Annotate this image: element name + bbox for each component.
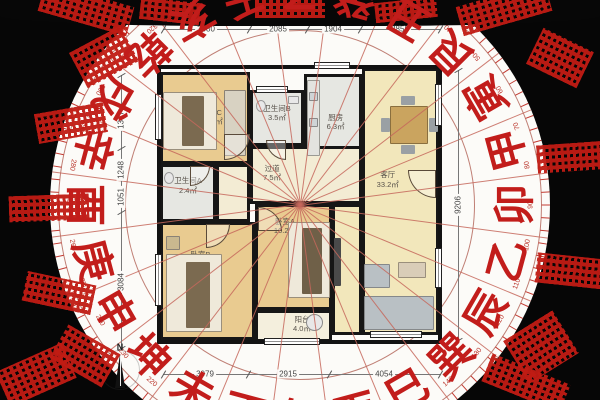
furniture-sink	[309, 92, 318, 101]
room-name: 过道	[263, 164, 281, 173]
degree-tick	[495, 57, 503, 63]
dimension-label: 9206	[454, 194, 463, 216]
furniture-stove	[309, 118, 318, 127]
window	[435, 84, 442, 126]
window	[264, 338, 320, 345]
degree-tick	[53, 242, 62, 244]
degree-tick	[142, 392, 148, 400]
degree-tick	[541, 191, 550, 192]
furniture-bed-blanket	[182, 96, 204, 146]
furniture-washer	[306, 314, 323, 331]
outer-ring-glyph	[535, 252, 600, 289]
degree-tick	[487, 47, 495, 53]
north-label: N	[117, 342, 124, 352]
degree-tick	[53, 165, 62, 167]
room-area: 3.5㎡	[263, 113, 291, 122]
degree-tick	[540, 230, 549, 232]
room-label: 卫生间B3.5㎡	[263, 104, 291, 123]
dimension-label: 1248	[117, 159, 126, 181]
room-name: 卫生间B	[263, 104, 291, 113]
degree-tick	[525, 291, 534, 295]
furniture-dining-table	[390, 106, 428, 144]
mountain-character: 子	[279, 0, 321, 11]
window	[155, 254, 162, 306]
room-label: 客厅33.2㎡	[377, 170, 399, 189]
mountain-character: 卯	[494, 184, 536, 226]
degree-tick	[479, 37, 486, 44]
degree-tick	[77, 314, 85, 319]
room-area: 2.4㎡	[174, 186, 202, 195]
outer-ring-glyph	[536, 140, 600, 173]
window	[256, 86, 288, 93]
window	[370, 331, 422, 338]
degree-tick	[533, 140, 542, 143]
degree-tick	[520, 303, 529, 308]
degree-tick	[515, 314, 523, 319]
room-area: 7.5㎡	[263, 173, 281, 182]
mountain-character: 酉	[64, 184, 106, 226]
room-area: 6.3㎡	[327, 122, 345, 131]
room-hallway: 过道7.5㎡	[250, 146, 362, 204]
outer-ring-glyph	[526, 28, 594, 89]
dimension-label: 2915	[277, 370, 299, 379]
furniture-armchair	[364, 264, 390, 288]
fengshui-floorplan-image: 0102030405060708090100110120130140150160…	[0, 0, 600, 400]
furniture-chair	[401, 145, 415, 154]
room-label: 过道7.5㎡	[263, 164, 281, 183]
degree-tick	[58, 267, 67, 270]
window	[314, 62, 350, 69]
degree-tick	[452, 392, 458, 400]
degree-tick	[461, 384, 468, 391]
room-name: 厨房	[327, 113, 345, 122]
degree-tick	[540, 178, 549, 180]
furniture-bed-blanket	[186, 262, 210, 328]
degree-tick	[520, 103, 529, 108]
degree-tick	[470, 375, 477, 382]
degree-tick	[50, 191, 59, 192]
degree-tick	[509, 79, 517, 84]
degree-tick	[502, 68, 510, 74]
furniture-bed-blanket	[302, 228, 322, 294]
furniture-tv-cabinet	[334, 238, 341, 286]
room-area: 33.2㎡	[377, 180, 399, 189]
furniture-sofa	[364, 296, 434, 330]
outer-ring-glyph	[0, 343, 77, 400]
furniture-toilet	[256, 100, 266, 112]
furniture-chair	[381, 118, 390, 132]
degree-tick	[541, 217, 550, 218]
degree-tick	[51, 178, 60, 180]
window	[155, 94, 162, 140]
furniture-chair	[401, 96, 415, 105]
room-name: 客厅	[377, 170, 399, 179]
degree-tick	[538, 242, 547, 244]
degree-tick	[509, 325, 517, 330]
degree-tick	[83, 325, 91, 330]
degree-tick	[542, 205, 551, 206]
degree-tick	[77, 91, 85, 96]
furniture-coffee-table	[398, 262, 426, 278]
degree-tick	[525, 115, 534, 119]
degree-tick	[515, 91, 523, 96]
window	[435, 248, 442, 288]
degree-tick	[530, 127, 539, 131]
room-area-hall-west	[216, 164, 250, 222]
furniture-basin	[288, 96, 299, 104]
furniture-nightstand	[166, 236, 180, 250]
furniture-toilet	[164, 172, 174, 184]
dimension-label: 1051	[117, 186, 126, 208]
degree-tick	[495, 347, 503, 353]
room-label: 厨房6.3㎡	[327, 113, 345, 132]
